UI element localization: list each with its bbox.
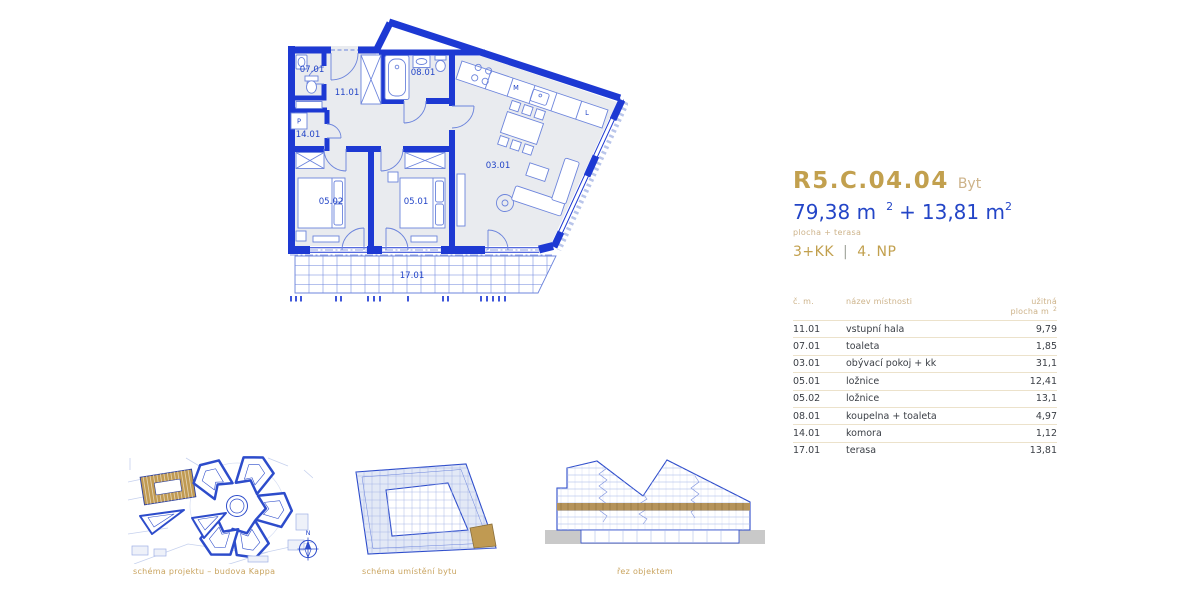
table-row: 07.01toaleta1,85 [793, 337, 1057, 354]
rooms-table-header: č. m. název místnosti užitná plocha m2 [793, 297, 1057, 320]
unit-type-label: Byt [958, 176, 981, 192]
rooms-table: č. m. název místnosti užitná plocha m2 1… [793, 297, 1057, 459]
unit-area: 79,38 m2+13,81 m2 [793, 200, 1093, 224]
header-room-area: užitná plocha m2 [995, 297, 1057, 316]
highlighted-floor-band [557, 503, 750, 511]
wc2-tank [435, 56, 446, 61]
section-thumbnail [545, 454, 765, 560]
hall-wardrobe [361, 55, 381, 104]
table-row: 08.01koupelna + toaleta4,97 [793, 407, 1057, 424]
bottom-windows [310, 248, 539, 252]
room-label-storage: 14.01 [296, 130, 321, 140]
bathtub [385, 56, 409, 100]
wc-bowl [307, 81, 317, 93]
compass-north-label: N [306, 529, 311, 537]
unit-title: R5.C.04.04Byt [793, 168, 1093, 194]
table-row: 03.01obývací pokoj + kk31,1 [793, 355, 1057, 372]
room-label-bedroom1: 05.01 [404, 197, 429, 207]
divider: | [843, 244, 848, 260]
unit-location-caption: schéma umístění bytu [362, 567, 457, 576]
area-terrace-value: 13,81 m [922, 200, 1005, 224]
header-room-number: č. m. [793, 297, 846, 306]
plus-sign: + [899, 200, 916, 224]
header-room-name: název místnosti [846, 297, 995, 306]
apartment-datasheet-page: 07.01 11.01 08.01 14.01 03.01 05.02 05.0… [0, 0, 1200, 600]
site-plan-caption: schéma projektu – budova Kappa [133, 567, 275, 576]
dimension-ticks [291, 296, 505, 302]
washbasin [413, 56, 430, 68]
room-label-toilet: 07.01 [300, 65, 325, 75]
kappa-building [140, 469, 196, 505]
disposition-line: 3+KK|4. NP [793, 244, 1093, 260]
washer-label: P [297, 118, 301, 126]
area-caption: plocha + terasa [793, 228, 1093, 237]
floor-plan: 07.01 11.01 08.01 14.01 03.01 05.02 05.0… [276, 6, 628, 306]
bedroom1-wardrobe [405, 153, 445, 169]
room-label-entry-hall: 11.01 [335, 88, 360, 98]
room-label-living: 03.01 [486, 161, 511, 171]
building-profile [557, 460, 750, 530]
floor-number: 4. NP [857, 244, 896, 260]
table-row: 14.01komora1,12 [793, 424, 1057, 441]
bedroom2-wardrobe [296, 153, 324, 169]
section-caption: řez objektem [617, 567, 673, 576]
area-terrace-sup: 2 [1005, 200, 1012, 213]
table-row: 11.01vstupní hala9,79 [793, 320, 1057, 337]
compass-icon: N [293, 527, 323, 565]
table-row: 17.01terasa13,81 [793, 442, 1057, 459]
room-label-terrace: 17.01 [400, 271, 425, 281]
disposition: 3+KK [793, 244, 834, 260]
table-row: 05.01ložnice12,41 [793, 372, 1057, 389]
area-main-sup: 2 [886, 200, 893, 213]
area-main-value: 79,38 m [793, 200, 876, 224]
highlighted-unit [470, 524, 496, 548]
dishwasher-label: M [513, 84, 519, 92]
unit-location-thumbnail [346, 460, 504, 560]
wc-tank [305, 76, 318, 81]
petal-buildings [188, 456, 294, 563]
site-plan-thumbnail [128, 456, 313, 564]
basement [581, 530, 739, 543]
fridge-label: L [585, 109, 589, 117]
table-row: 05.02ložnice13,1 [793, 390, 1057, 407]
room-label-bathroom: 08.01 [411, 68, 436, 78]
unit-code: R5.C.04.04 [793, 168, 949, 194]
unit-info-block: R5.C.04.04Byt 79,38 m2+13,81 m2 plocha +… [793, 168, 1093, 260]
tv-unit [457, 174, 465, 226]
wc2-bowl [436, 60, 446, 71]
room-label-bedroom2: 05.02 [319, 197, 344, 207]
